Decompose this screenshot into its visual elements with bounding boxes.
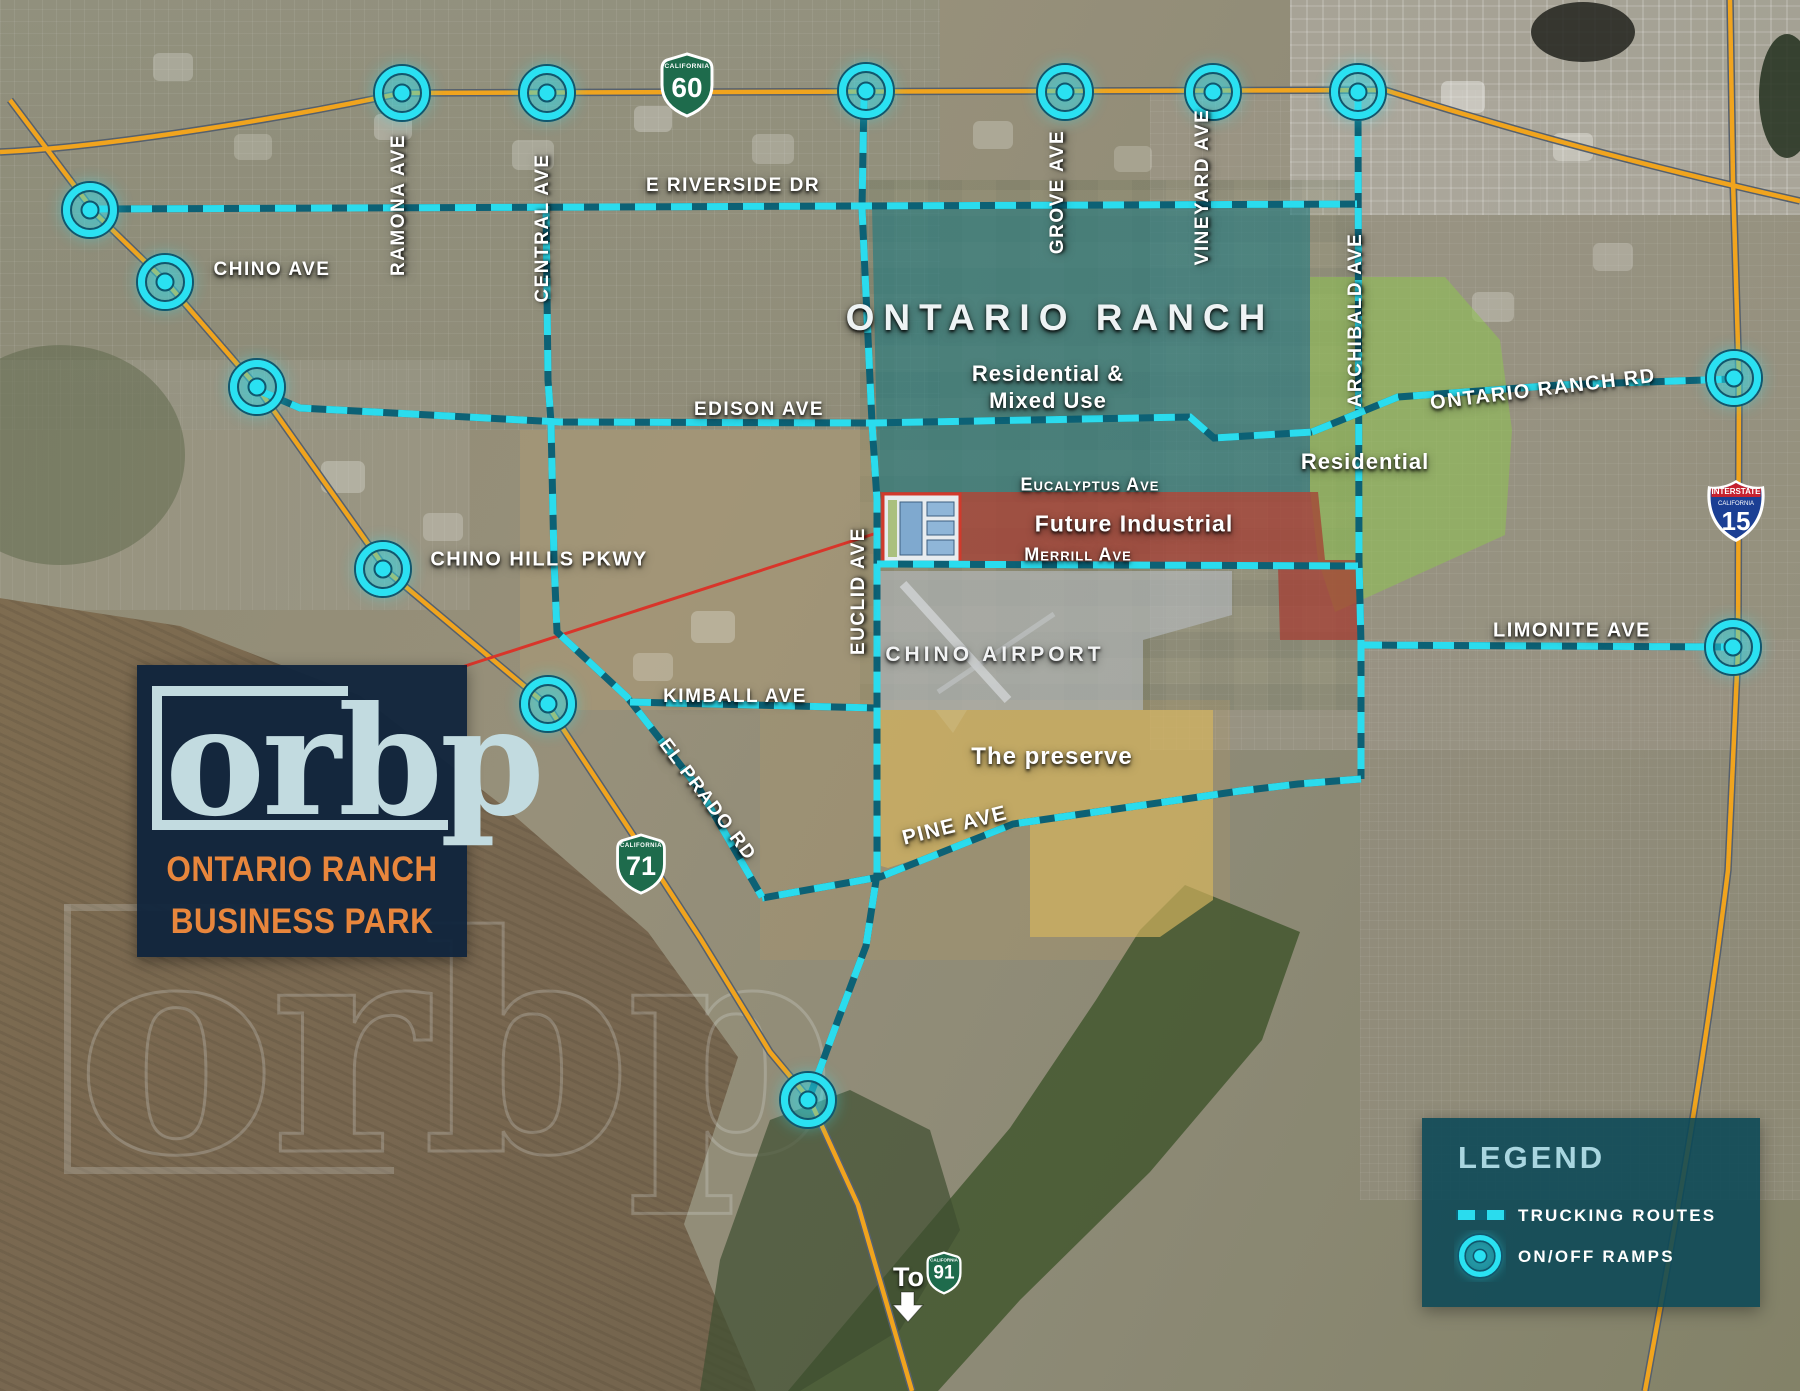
legend-title: LEGEND [1458, 1140, 1605, 1176]
street-label-archibald-ave: ARCHIBALD AVE [1345, 233, 1367, 408]
ramp-icon [355, 541, 411, 597]
street-label-chino-hills-pkwy: CHINO HILLS PKWY [430, 549, 647, 572]
ca-60-shield: CALIFORNIA 60 [655, 51, 719, 119]
i-15-shield: INTERSTATE CALIFORNIA 15 [1704, 478, 1768, 546]
shield-state-label: CALIFORNIA [655, 63, 719, 70]
ramp-icon [1706, 350, 1762, 406]
trucking-route-icon [1456, 1210, 1506, 1220]
street-label-vineyard-ave: VINEYARD AVE [1192, 109, 1214, 266]
shield-number: 60 [655, 72, 719, 104]
area-label-residential: Residential [1301, 449, 1429, 475]
on-off-ramp-icon [1454, 1230, 1506, 1282]
to-91-label: To [893, 1262, 924, 1293]
shield-number: 15 [1722, 506, 1751, 536]
ramp-icon [838, 63, 894, 119]
street-label-grove-ave: GROVE AVE [1047, 130, 1069, 254]
ramp-icon [62, 182, 118, 238]
ramp-icon [1037, 64, 1093, 120]
shield-band-label: INTERSTATE [1711, 487, 1761, 496]
area-sublabel-residential-mixed-1: Residential & [972, 361, 1124, 387]
street-label-central-ave: CENTRAL AVE [532, 153, 554, 302]
shrubs-west [0, 345, 185, 565]
ramp-icon [1330, 64, 1386, 120]
ramp-icon [780, 1072, 836, 1128]
orbp-logo: orbp ONTARIO RANCH BUSINESS PARK [137, 665, 467, 957]
street-label-edison-ave: EDISON AVE [694, 399, 824, 421]
area-label-chino-airport: CHINO AIRPORT [885, 643, 1104, 667]
ramp-icon [374, 65, 430, 121]
ramp-icon [137, 254, 193, 310]
logo-line2: BUSINESS PARK [154, 902, 451, 942]
ramp-icon [1705, 619, 1761, 675]
site-plan-thumbnail [883, 494, 960, 564]
highway-60 [0, 90, 1800, 201]
ramp-icon [519, 65, 575, 121]
logo-wordmark: orbp [165, 687, 542, 837]
street-label-kimball-ave: KIMBALL AVE [663, 686, 807, 708]
street-label-ramona-ave: RAMONA AVE [388, 134, 410, 276]
shield-number: 91 [923, 1263, 965, 1285]
area-label-ontario-ranch: ONTARIO RANCH [846, 297, 1275, 339]
legend-ramps-label: ON/OFF RAMPS [1518, 1247, 1675, 1267]
street-label-merrill-ave: Merrill Ave [1024, 545, 1132, 566]
street-label-limonite-ave: LIMONITE AVE [1493, 620, 1651, 643]
street-label-euclid-ave: EUCLID AVE [848, 527, 870, 655]
street-label-chino-ave: CHINO AVE [214, 259, 331, 281]
map-canvas: orbp [0, 0, 1800, 1391]
ca-71-shield: CALIFORNIA 71 [611, 832, 671, 896]
area-label-the-preserve: The preserve [971, 743, 1132, 771]
logo-line1: ONTARIO RANCH [154, 850, 451, 890]
legend-panel: LEGEND TRUCKING ROUTES ON/OFF RAMPS [1422, 1118, 1760, 1307]
street-label-e-riverside-dr: E RIVERSIDE DR [646, 175, 820, 197]
ramp-icon [229, 359, 285, 415]
shield-state-label: CALIFORNIA [611, 843, 671, 849]
area-sublabel-residential-mixed-2: Mixed Use [989, 388, 1107, 414]
shield-number: 71 [611, 851, 671, 882]
zone-ontario-ranch-teal [872, 206, 1310, 492]
ca-91-shield: CALIFORNIA 91 [923, 1251, 965, 1296]
legend-trucking-label: TRUCKING ROUTES [1518, 1206, 1716, 1226]
pond-northeast [1531, 2, 1635, 62]
area-label-future-industrial: Future Industrial [1035, 511, 1233, 538]
pond-east-edge [1759, 34, 1800, 158]
street-label-eucalyptus-ave: Eucalyptus Ave [1021, 475, 1160, 496]
